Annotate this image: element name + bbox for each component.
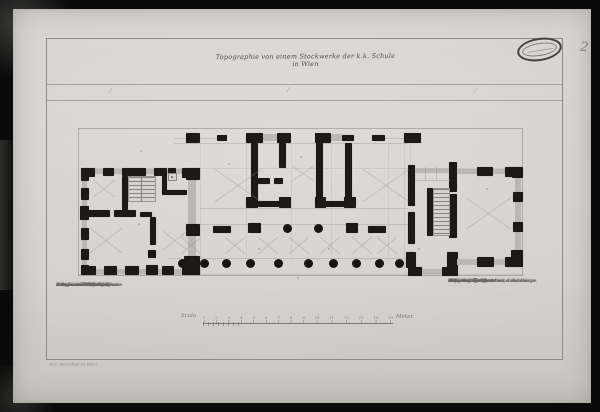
page-number: 2 xyxy=(579,40,589,56)
room-mark xyxy=(300,156,302,158)
wall xyxy=(258,201,279,207)
pier xyxy=(81,188,89,200)
pilaster xyxy=(513,192,523,202)
partition-line xyxy=(415,180,450,181)
pilaster xyxy=(513,222,523,232)
pier xyxy=(186,224,200,236)
column xyxy=(314,224,323,233)
room-mark xyxy=(418,248,420,250)
staircase xyxy=(433,188,450,236)
partition-line xyxy=(436,167,437,180)
scale-fine-divisions xyxy=(203,322,241,326)
wall-base xyxy=(422,269,442,274)
pier xyxy=(213,226,231,233)
wall xyxy=(279,143,286,168)
title-band-line xyxy=(46,100,563,101)
pier xyxy=(368,226,386,233)
room-mark xyxy=(138,223,140,225)
scale-tick: 5 xyxy=(253,316,255,323)
scale-tick-label: 13 xyxy=(359,316,364,320)
pier xyxy=(82,266,96,275)
scale-tick: 11 xyxy=(329,316,334,323)
pier xyxy=(277,133,291,143)
wall xyxy=(345,143,352,200)
pier xyxy=(103,168,114,176)
construction-line xyxy=(200,224,408,225)
scale-tick-label: 12 xyxy=(344,316,349,320)
scale-tick: 6 xyxy=(265,316,267,323)
scale-tick: 8 xyxy=(290,316,292,323)
pier xyxy=(477,167,493,176)
pier xyxy=(162,266,174,275)
column xyxy=(304,259,313,268)
scale-tick: 7 xyxy=(278,316,280,323)
pier xyxy=(342,135,354,141)
wall xyxy=(88,210,110,217)
column xyxy=(246,259,255,268)
pier xyxy=(81,168,89,181)
column xyxy=(395,259,404,268)
column xyxy=(222,259,231,268)
scale-tick-label: 10 xyxy=(315,316,320,320)
pier xyxy=(505,257,522,267)
scale-tick: 13 xyxy=(359,316,364,323)
scale-tick-label: 8 xyxy=(290,316,292,320)
stair-divider xyxy=(141,176,142,202)
scale-tick: 12 xyxy=(344,316,349,323)
scale-tick: 14 xyxy=(374,316,379,323)
pier xyxy=(246,133,263,143)
scale-tick-label: 15 xyxy=(388,316,393,320)
pier xyxy=(346,223,358,233)
pier xyxy=(186,133,200,143)
pier xyxy=(372,135,385,141)
scale-tick-label: 5 xyxy=(253,316,255,320)
column xyxy=(200,259,209,268)
wall xyxy=(408,165,415,206)
drawing-sheet: ⁄ ⁄ ⁄ Topographie von einem Stockwerke d… xyxy=(13,9,591,403)
room-mark xyxy=(258,248,260,250)
axis-mark: ⁄ xyxy=(288,87,289,94)
pier xyxy=(279,197,291,208)
scale-tick-label: 7 xyxy=(278,316,280,320)
pier xyxy=(125,266,139,275)
construction-line xyxy=(388,143,389,258)
wall xyxy=(148,250,156,258)
wall-opening xyxy=(263,134,277,141)
scale-tick-label: 6 xyxy=(265,316,267,320)
scale-label-right: Meter. xyxy=(396,313,414,320)
column xyxy=(283,224,292,233)
scale-bar: 1 2 3 xyxy=(203,315,393,326)
construction-line xyxy=(200,208,408,209)
pier xyxy=(404,133,421,143)
sheet-layout: ⁄ ⁄ ⁄ Topographie von einem Stockwerke d… xyxy=(0,0,600,412)
title-block: Topographie von einem Stockwerke der k.k… xyxy=(213,53,403,68)
column xyxy=(329,259,338,268)
construction-line xyxy=(410,143,411,165)
wall xyxy=(114,210,136,217)
room-mark xyxy=(486,188,488,190)
partition-line xyxy=(425,167,426,180)
pier xyxy=(442,267,458,276)
scale-tick-label: 14 xyxy=(374,316,379,320)
pier xyxy=(122,168,146,176)
scale-tick-label: 11 xyxy=(329,316,334,320)
wall-opening xyxy=(331,134,342,141)
scale-tick: 9 xyxy=(302,316,304,323)
column xyxy=(375,259,384,268)
wall xyxy=(449,194,457,238)
scale-label-left: Scala xyxy=(181,312,196,319)
wall xyxy=(150,217,156,245)
pier xyxy=(406,252,416,268)
room-mark xyxy=(297,277,299,279)
pier xyxy=(81,249,89,260)
legend-item-text: Brunnen. xyxy=(448,278,470,284)
column xyxy=(274,259,283,268)
column xyxy=(352,259,361,268)
photograph: ⁄ ⁄ ⁄ Topographie von einem Stockwerke d… xyxy=(0,0,600,412)
wall-base xyxy=(515,169,521,260)
room-mark xyxy=(328,248,330,250)
pier xyxy=(104,266,117,275)
pier xyxy=(184,256,200,275)
scale-tick: 10 xyxy=(315,316,320,323)
axis-mark: ⁄ xyxy=(475,88,476,95)
scale-tick-label: 2 xyxy=(215,316,217,320)
pier xyxy=(217,135,227,141)
wall xyxy=(274,178,283,184)
pier xyxy=(186,168,200,180)
fixture-dot xyxy=(171,176,173,178)
wall xyxy=(408,212,415,244)
construction-line xyxy=(385,138,404,139)
scale-tick-label: 3 xyxy=(228,316,230,320)
scale-tick-label: 1 xyxy=(203,316,205,320)
title-band-line xyxy=(46,84,563,85)
wall-base xyxy=(415,168,449,173)
pilaster xyxy=(512,167,523,178)
pier xyxy=(146,265,158,275)
wall xyxy=(324,201,346,207)
caption-bottom-left: Gez. Marschall W. Wien xyxy=(49,362,97,367)
pier xyxy=(315,133,331,143)
pier xyxy=(81,228,89,240)
wall xyxy=(449,162,457,192)
title-script: Topographie von einem Stockwerke der k.k… xyxy=(213,52,398,68)
wall xyxy=(162,190,187,195)
staircase xyxy=(128,176,156,202)
construction-line xyxy=(404,143,405,274)
pier xyxy=(477,257,494,267)
scale-tick-label: 9 xyxy=(302,316,304,320)
legend-item-text: Gang mit den Säulen. xyxy=(56,282,107,288)
pier xyxy=(408,267,422,276)
pier xyxy=(248,223,261,233)
floor-plan xyxy=(78,128,524,280)
wall xyxy=(316,143,323,200)
scale-tick-label: 4 xyxy=(240,316,242,320)
room-mark xyxy=(140,150,142,152)
wall xyxy=(258,178,270,184)
axis-mark: ⁄ xyxy=(110,88,111,95)
scale-tick: 15 xyxy=(388,316,393,323)
room-mark xyxy=(228,163,230,165)
